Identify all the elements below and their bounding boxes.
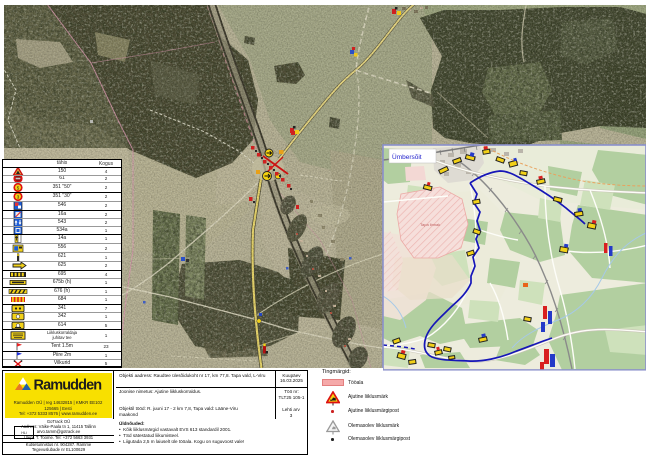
svg-text:Ümbersõit: Ümbersõit [392, 153, 422, 161]
svg-text:Ramudden: Ramudden [34, 377, 102, 392]
svg-text:Tapa linnak: Tapa linnak [420, 222, 440, 227]
